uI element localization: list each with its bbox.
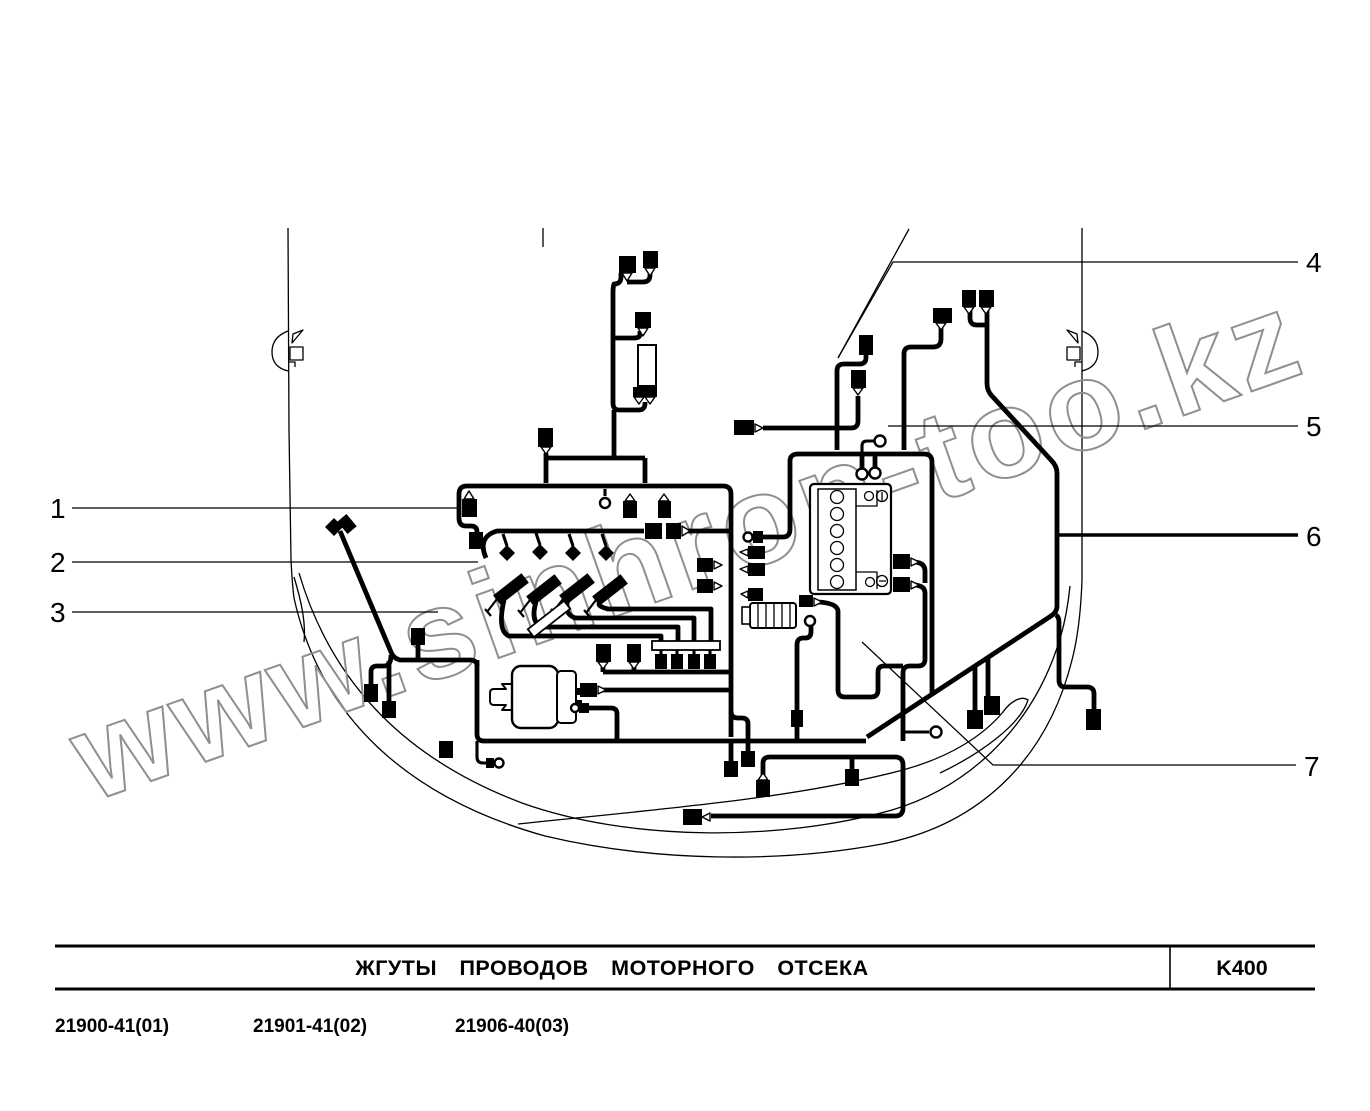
callout-1: 1 bbox=[50, 493, 66, 524]
drawing-title: ЖГУТЫ ПРОВОДОВ МОТОРНОГО ОТСЕКА bbox=[354, 956, 868, 980]
part-number-3: 21906-40(03) bbox=[455, 1016, 569, 1037]
callout-2: 2 bbox=[50, 547, 66, 578]
ring-terminal bbox=[875, 436, 886, 447]
title-block: ЖГУТЫ ПРОВОДОВ МОТОРНОГО ОТСЕКА K400 219… bbox=[55, 946, 1315, 1037]
callout-3: 3 bbox=[50, 597, 66, 628]
callout-5: 5 bbox=[1306, 411, 1322, 442]
starter-solenoid bbox=[742, 603, 796, 628]
injector-rail bbox=[652, 641, 720, 650]
callout-6: 6 bbox=[1306, 521, 1322, 552]
battery-terminal-eyelet bbox=[870, 468, 881, 479]
part-number-2: 21901-41(02) bbox=[253, 1016, 367, 1037]
part-number-1: 21900-41(01) bbox=[55, 1016, 169, 1037]
catalog-page: www.sinhron-too.kz bbox=[0, 0, 1370, 1111]
callout-4: 4 bbox=[1306, 247, 1322, 278]
left-mirror bbox=[272, 330, 303, 371]
callout-7: 7 bbox=[1304, 751, 1320, 782]
relay-box bbox=[638, 345, 656, 386]
battery-terminal-eyelet bbox=[857, 469, 868, 480]
wiring-diagram-figure: www.sinhron-too.kz bbox=[0, 0, 1370, 1111]
drawing-code: K400 bbox=[1216, 956, 1267, 980]
